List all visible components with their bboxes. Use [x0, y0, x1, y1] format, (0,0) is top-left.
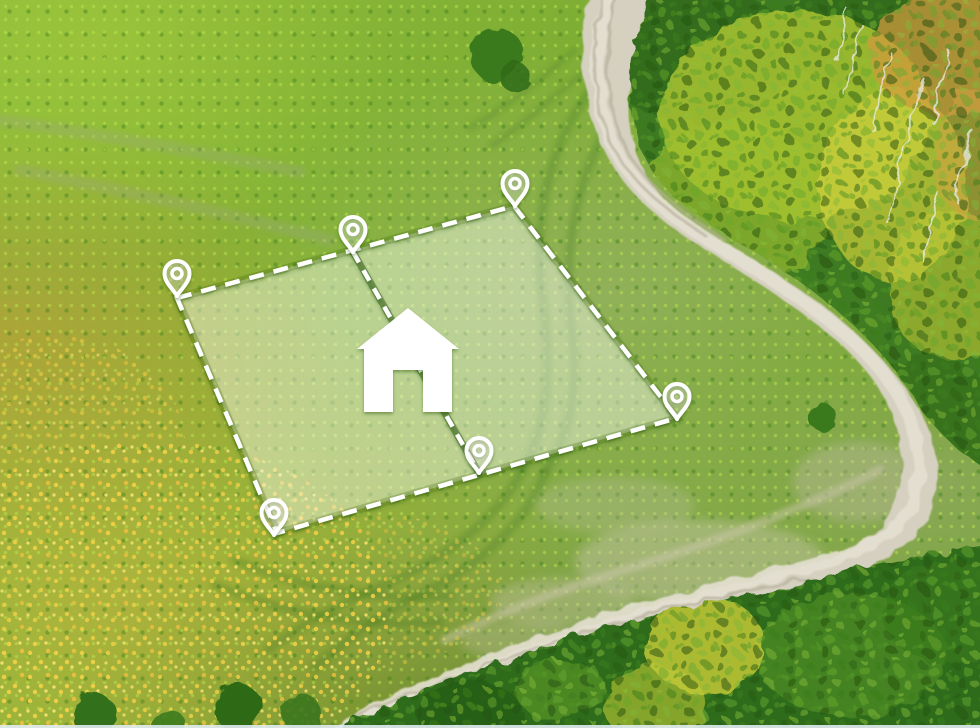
map-pin-icon — [503, 171, 528, 206]
sand-patch — [535, 477, 695, 533]
bush — [501, 63, 531, 93]
map-pin-icon — [165, 261, 190, 296]
aerial-land-plot-photo — [0, 0, 980, 728]
grass-trail — [0, 120, 300, 172]
flower-patch — [200, 510, 500, 670]
bush — [809, 404, 837, 432]
grass-trail — [20, 170, 330, 240]
